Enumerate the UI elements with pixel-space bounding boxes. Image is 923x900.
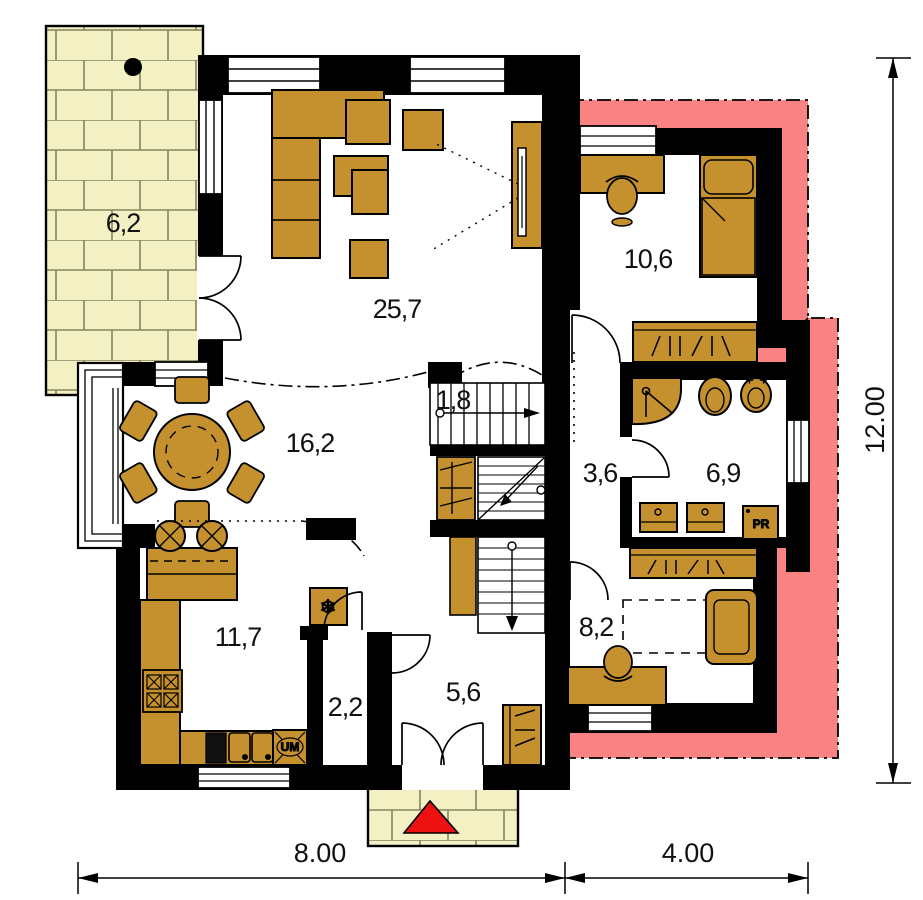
living-west-window (199, 100, 222, 194)
room-label-study: 8,2 (579, 612, 614, 642)
entry-wardrobe (503, 705, 541, 765)
vanity-cabinet (687, 503, 724, 532)
dishwasher-label: UM (281, 740, 300, 754)
vanity-cabinet (640, 503, 677, 532)
floor-plan-drawing: UM ❄ (0, 0, 923, 900)
freezer-icon: ❄ (320, 597, 337, 619)
bathroom-east-window (787, 420, 809, 483)
bar-stool (155, 521, 185, 551)
porch (368, 782, 518, 846)
room-label-bath: 6,9 (706, 458, 741, 488)
tv-cabinet (512, 122, 542, 248)
kitchen-south-window (198, 767, 290, 788)
coffee-table (352, 170, 388, 214)
terrace-dot (124, 58, 142, 76)
freezer: ❄ (310, 588, 347, 625)
wardrobe (630, 548, 757, 578)
floor-plan: UM ❄ (0, 0, 923, 900)
toilet (741, 377, 771, 413)
study-south-window (588, 705, 652, 731)
bed (700, 155, 757, 277)
bar-stool (197, 521, 227, 551)
sofa (272, 138, 320, 258)
counter-dark-section (206, 733, 226, 763)
room-label-stairs: 1,8 (436, 385, 471, 415)
sofa (346, 100, 390, 144)
lounge-chair (706, 590, 757, 664)
living-north-window-2 (410, 57, 505, 93)
room-label-living: 25,7 (373, 294, 422, 324)
dimension-label-height: 12.00 (860, 386, 890, 454)
bay-window (78, 363, 123, 548)
room-label-bedroom: 10,6 (624, 244, 673, 274)
pouf (350, 240, 388, 278)
room-label-entry: 5,6 (446, 677, 481, 707)
dimension-label-width-left: 8.00 (294, 838, 347, 868)
washer-label: PR (753, 517, 770, 531)
dimension-label-width-right: 4.00 (662, 838, 715, 868)
stair-side-panel (450, 537, 476, 615)
wardrobe (633, 322, 757, 362)
armchair (403, 110, 443, 150)
dishwasher: UM (273, 730, 307, 765)
stove (143, 670, 182, 712)
room-label-dining: 16,2 (286, 428, 335, 458)
bedroom-north-window (580, 126, 656, 157)
room-label-pantry: 2,2 (328, 692, 363, 722)
stair-closet (437, 457, 475, 520)
living-north-window-1 (228, 57, 320, 93)
room-label-kitchen: 11,7 (215, 622, 262, 652)
bidet (699, 377, 731, 415)
room-label-hall: 3,6 (583, 458, 618, 488)
washing-machine: PR (743, 506, 778, 539)
room-label-terrace: 6,2 (106, 208, 141, 238)
